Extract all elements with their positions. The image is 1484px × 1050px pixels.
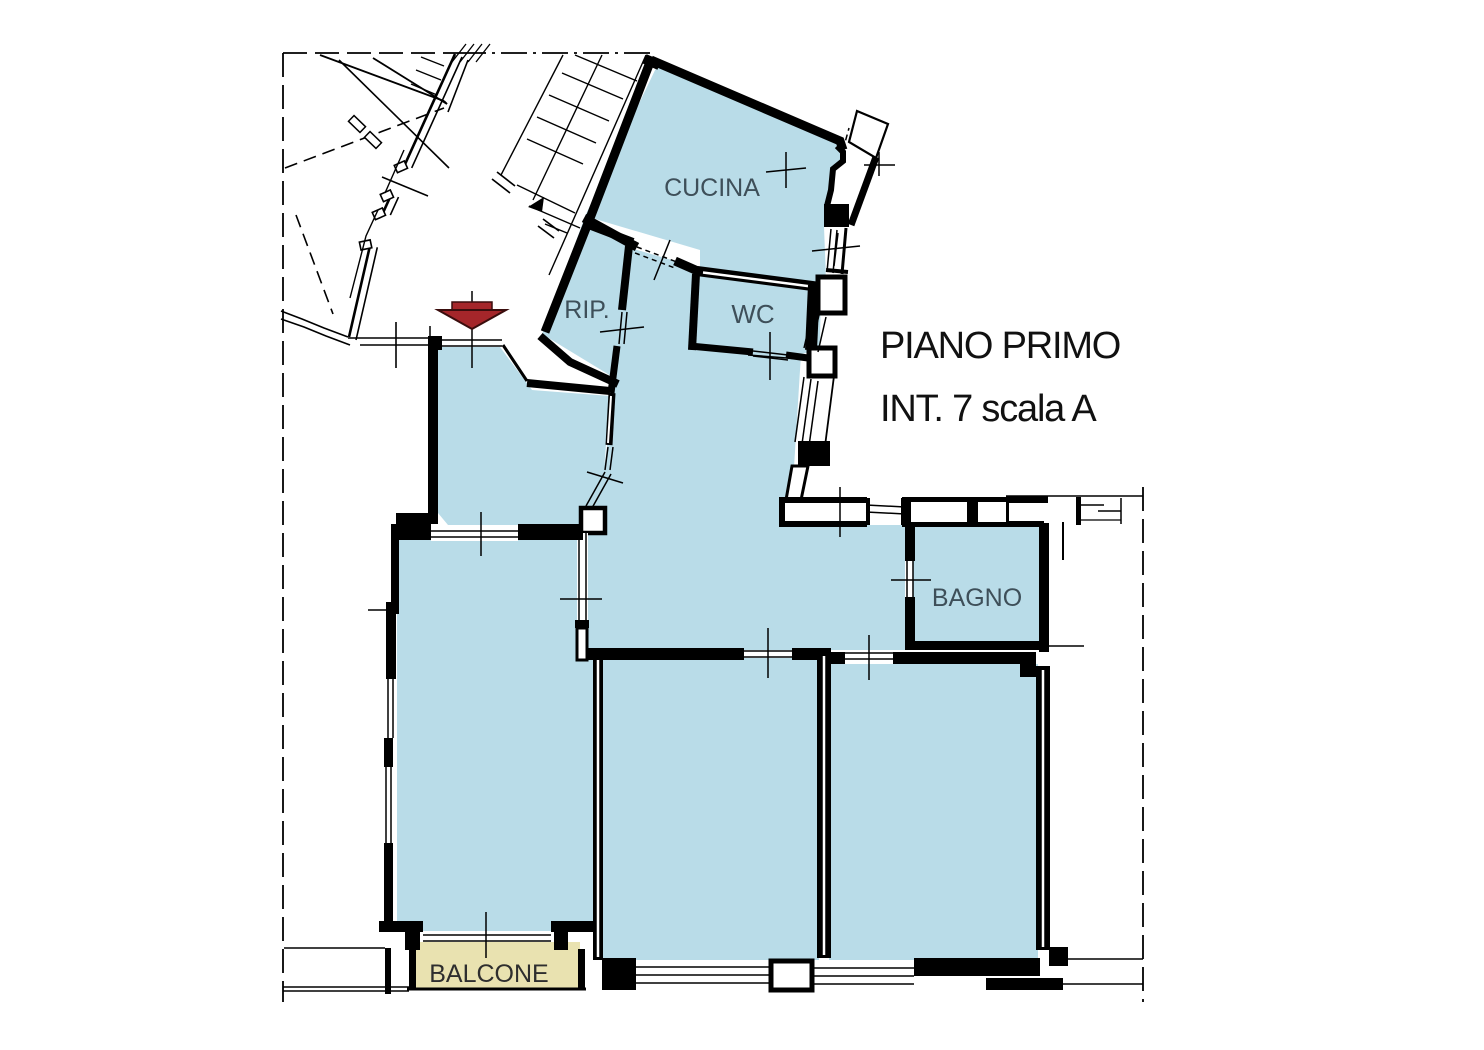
svg-text:INT. 7 scala A: INT. 7 scala A: [880, 388, 1097, 430]
svg-text:WC: WC: [731, 299, 774, 329]
svg-text:RIP.: RIP.: [564, 296, 609, 324]
svg-text:BALCONE: BALCONE: [429, 960, 548, 988]
svg-text:CUCINA: CUCINA: [664, 174, 760, 202]
svg-text:PIANO PRIMO: PIANO PRIMO: [880, 325, 1120, 367]
svg-text:BAGNO: BAGNO: [932, 584, 1022, 612]
